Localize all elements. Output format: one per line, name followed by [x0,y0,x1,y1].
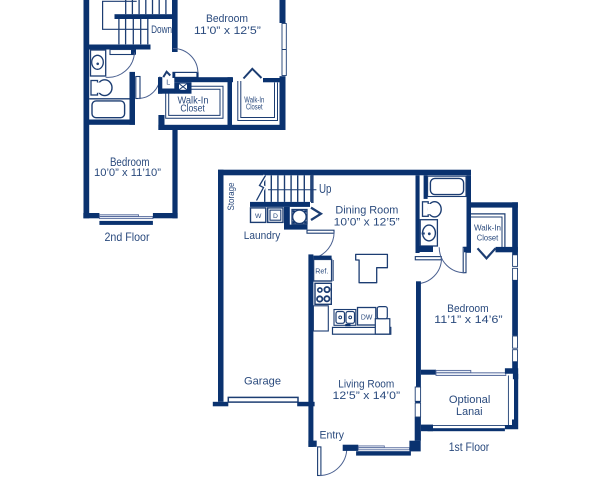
svg-text:Optional: Optional [449,394,491,406]
svg-text:Up: Up [319,182,332,196]
svg-text:10’0” x 11’10”: 10’0” x 11’10” [94,167,161,179]
svg-text:11’0” x 12’5”: 11’0” x 12’5” [194,25,261,37]
svg-text:Lanai: Lanai [456,406,483,418]
svg-text:Laundry: Laundry [244,230,281,242]
svg-text:12’5” x 14’0”: 12’5” x 14’0” [333,390,401,402]
svg-text:D: D [273,213,278,220]
svg-text:Storage: Storage [226,183,236,211]
svg-text:Closet: Closet [477,233,499,242]
svg-text:W: W [255,213,262,220]
svg-text:Down: Down [151,24,172,36]
svg-text:1st Floor: 1st Floor [449,440,490,454]
svg-text:2nd Floor: 2nd Floor [105,230,150,244]
svg-text:L: L [166,78,170,87]
svg-text:Entry: Entry [320,429,345,441]
svg-text:Closet: Closet [246,102,263,111]
svg-text:Garage: Garage [244,375,281,387]
svg-text:Ref.: Ref. [315,266,328,275]
svg-text:Living Room: Living Room [338,378,394,390]
svg-text:DW: DW [361,312,373,321]
svg-text:Bedroom: Bedroom [206,13,248,25]
svg-text:11’1” x 14’6”: 11’1” x 14’6” [434,314,503,326]
svg-text:Dining Room: Dining Room [335,204,398,216]
svg-text:Walk-In: Walk-In [474,224,501,233]
svg-text:10’0” x 12’5”: 10’0” x 12’5” [334,216,400,228]
svg-text:Closet: Closet [180,103,205,114]
